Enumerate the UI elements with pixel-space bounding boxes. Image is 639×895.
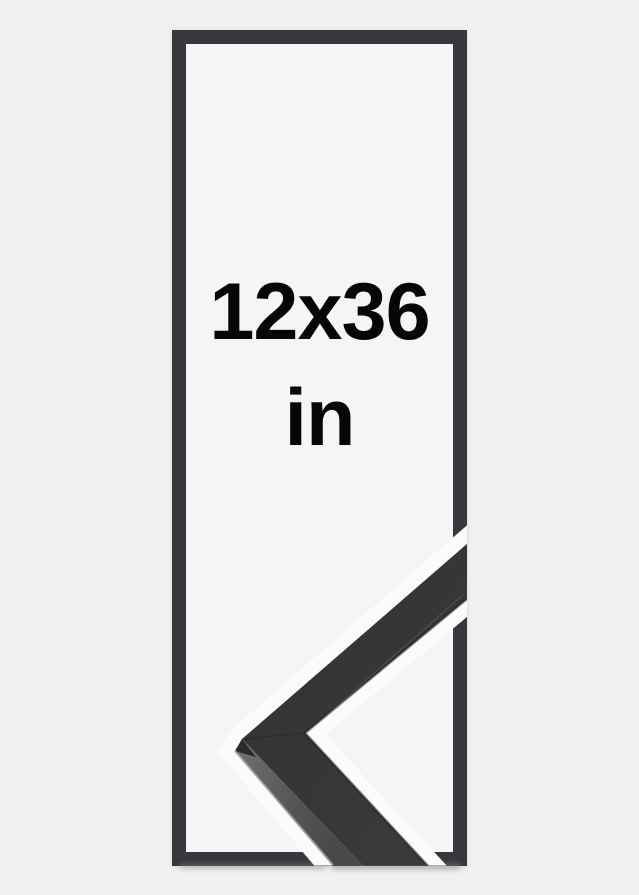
size-label: 12x36 in <box>172 259 467 471</box>
size-label-dimensions: 12x36 <box>172 259 467 365</box>
product-image: 12x36 in <box>0 0 639 895</box>
size-label-unit: in <box>172 365 467 471</box>
